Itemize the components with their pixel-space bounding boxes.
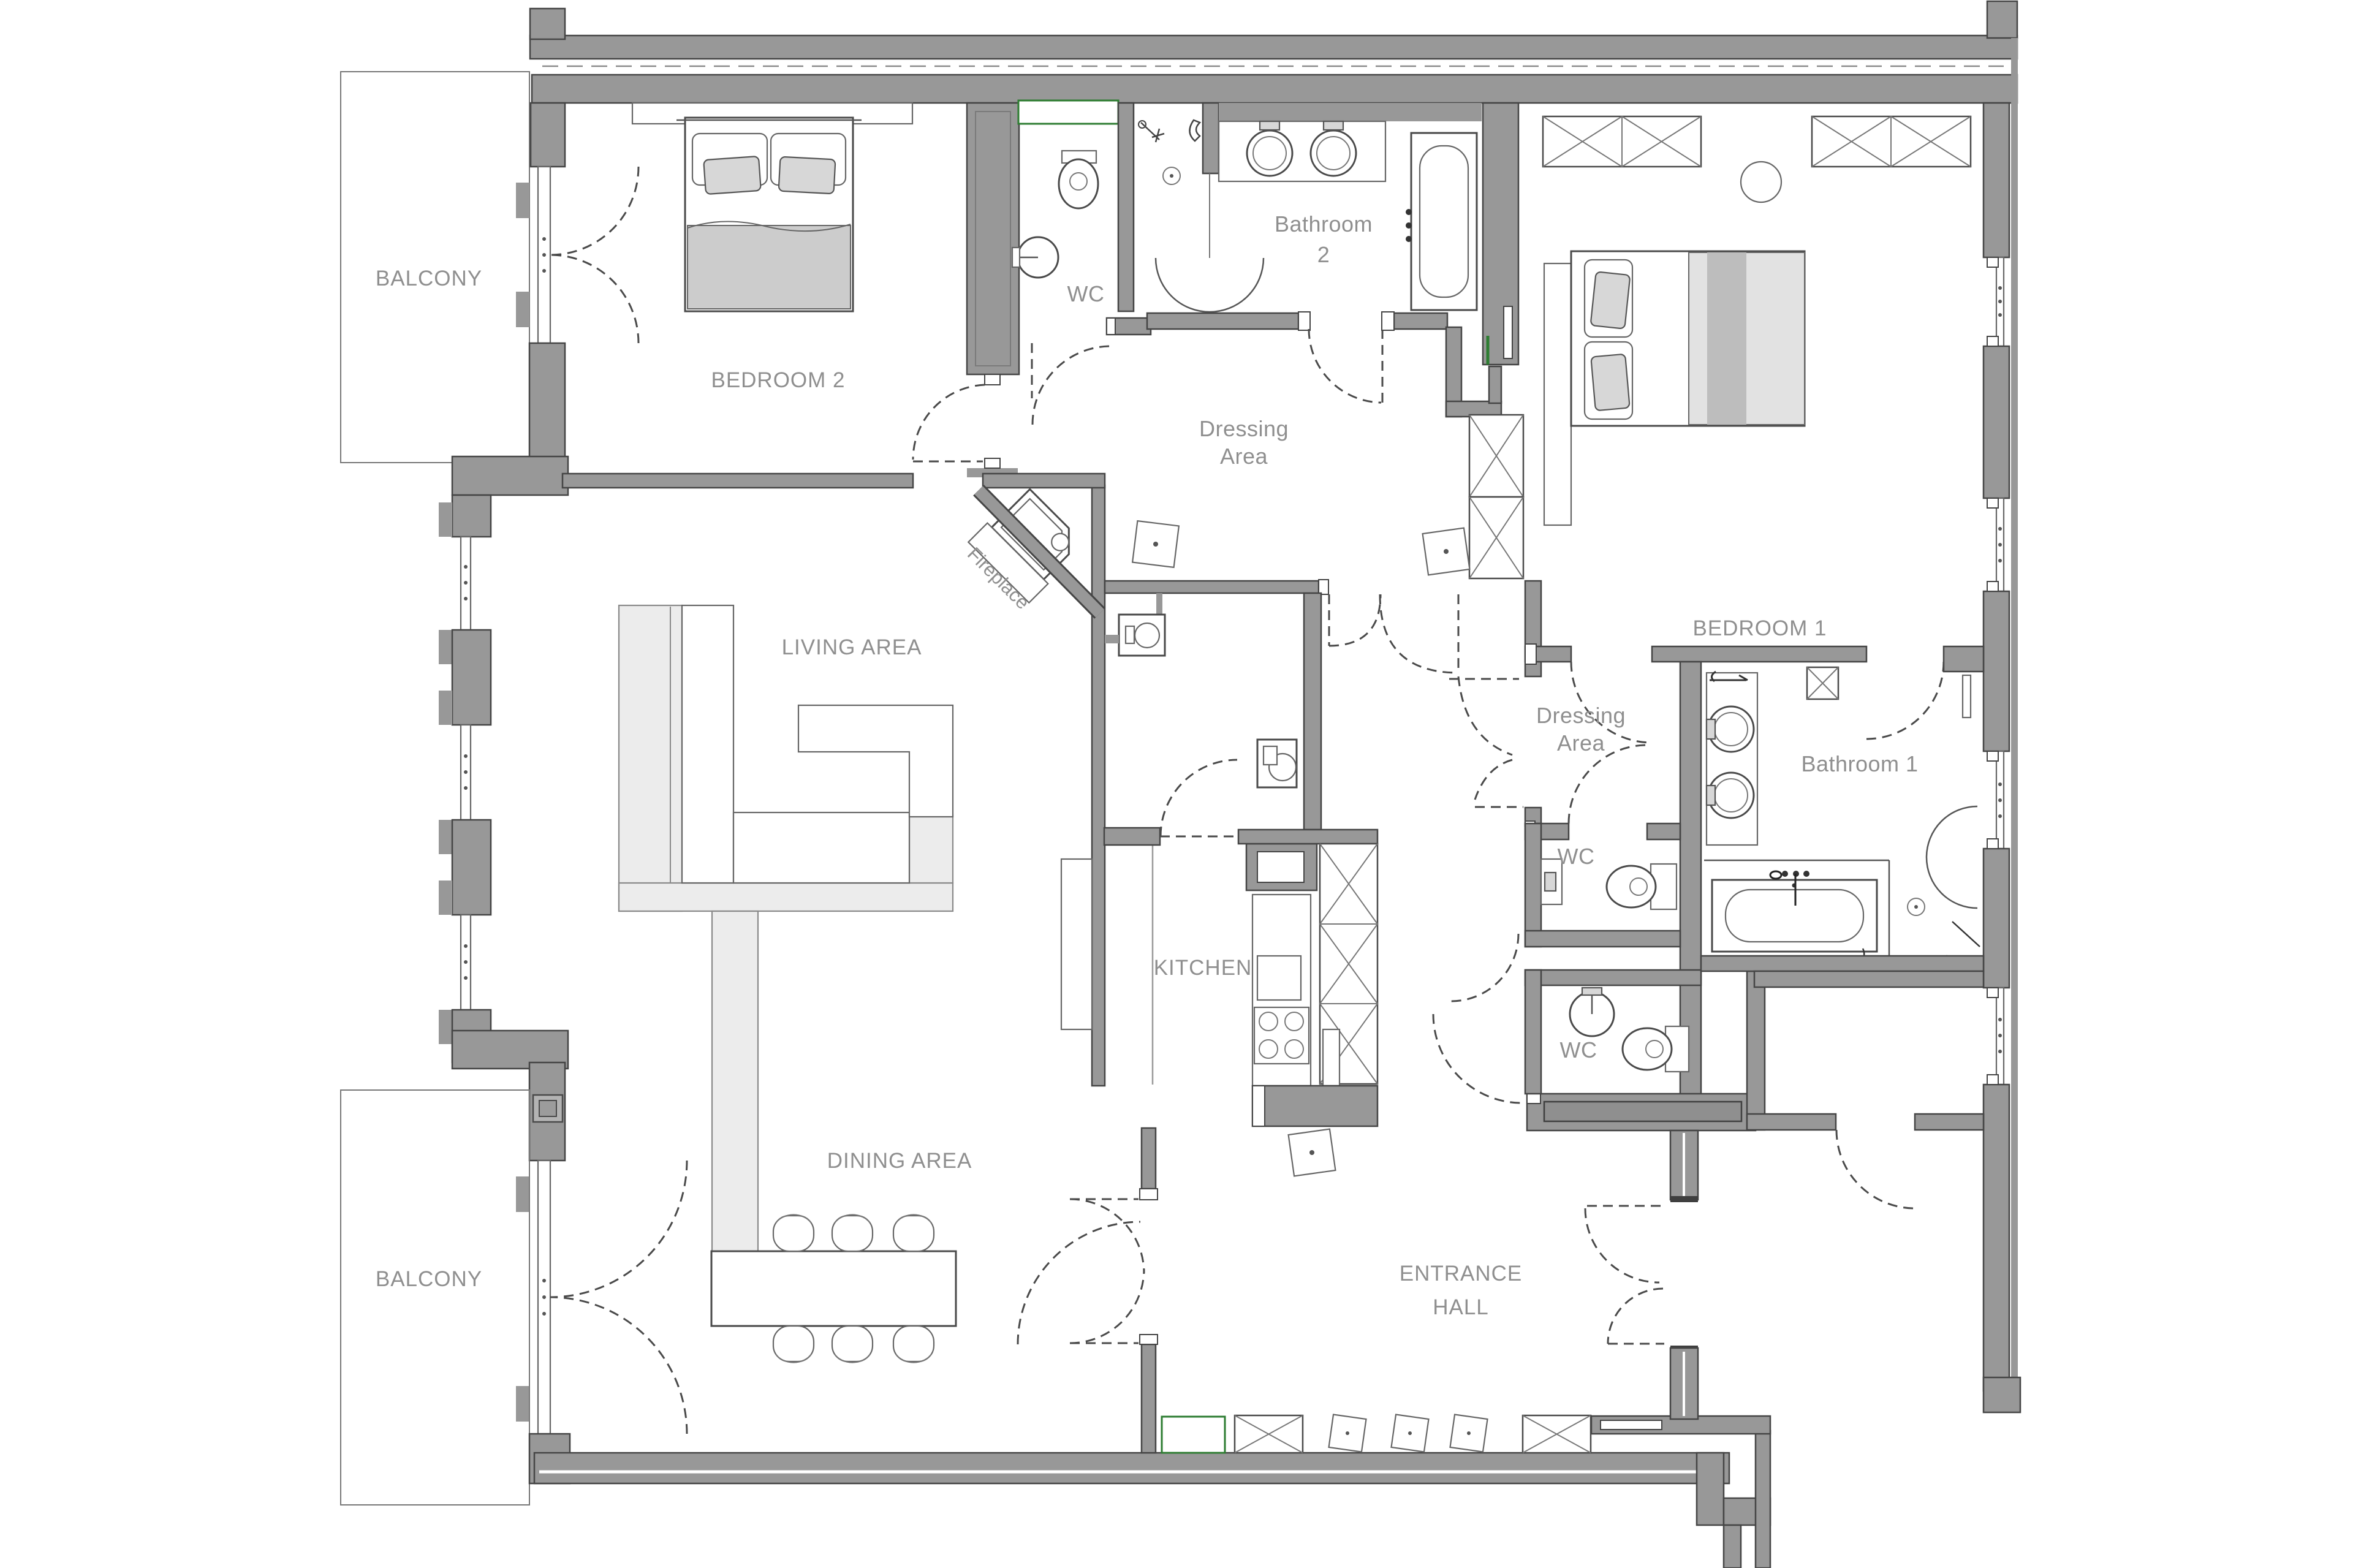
svg-text:KITCHEN: KITCHEN [1154,956,1252,980]
svg-text:BALCONY: BALCONY [376,1267,482,1291]
svg-text:BALCONY: BALCONY [376,267,482,290]
svg-text:Bathroom: Bathroom [1275,211,1373,237]
svg-text:LIVING AREA: LIVING AREA [782,635,922,659]
svg-text:DINING AREA: DINING AREA [827,1149,972,1173]
svg-text:Bathroom 1: Bathroom 1 [1801,751,1918,776]
svg-text:HALL: HALL [1433,1295,1489,1319]
svg-text:WC: WC [1558,844,1595,869]
svg-text:Area: Area [1220,444,1268,469]
svg-text:BEDROOM 2: BEDROOM 2 [711,368,845,392]
svg-text:Dressing: Dressing [1199,416,1289,441]
svg-text:WC: WC [1067,281,1105,306]
svg-text:BEDROOM 1: BEDROOM 1 [1692,616,1827,640]
svg-text:WC: WC [1560,1037,1597,1062]
svg-text:ENTRANCE: ENTRANCE [1400,1262,1523,1286]
svg-text:Area: Area [1557,730,1605,756]
svg-text:2: 2 [1317,242,1330,267]
svg-text:Dressing: Dressing [1536,703,1626,728]
